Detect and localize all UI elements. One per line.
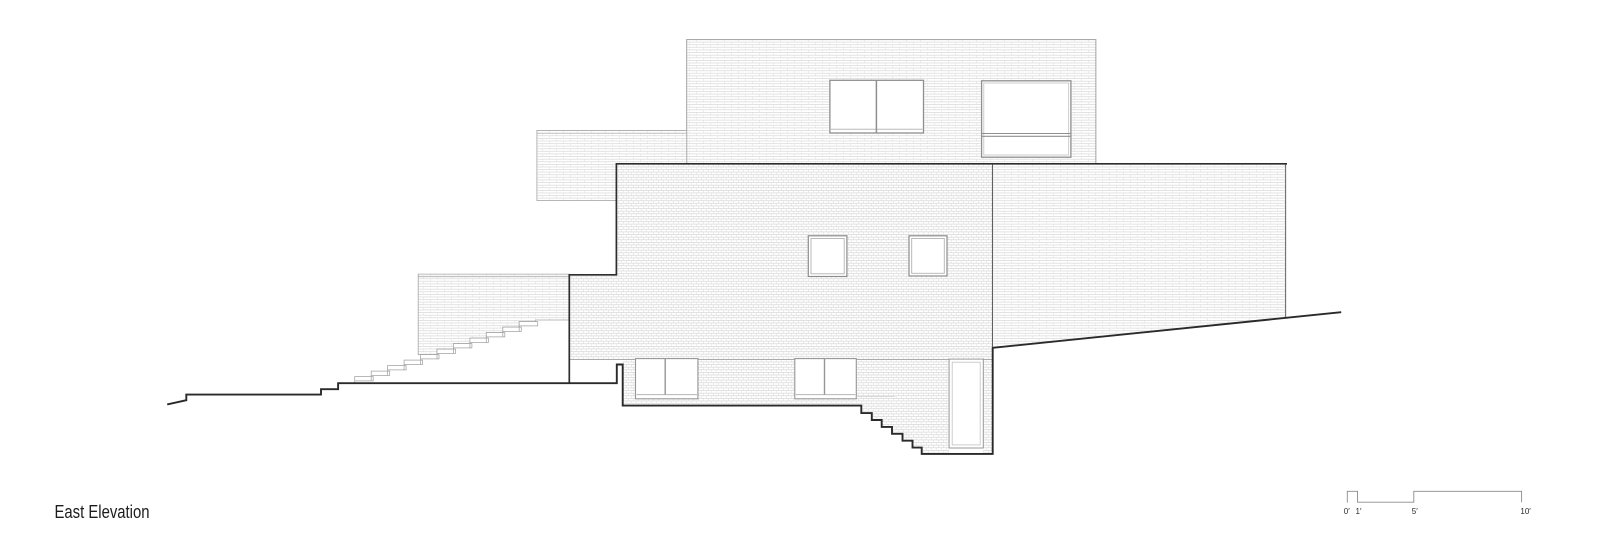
svg-text:10′: 10′ — [1520, 507, 1531, 516]
svg-text:East Elevation: East Elevation — [55, 502, 150, 522]
svg-text:1′: 1′ — [1356, 507, 1362, 516]
svg-text:0′: 0′ — [1344, 507, 1350, 516]
svg-text:5′: 5′ — [1412, 507, 1418, 516]
